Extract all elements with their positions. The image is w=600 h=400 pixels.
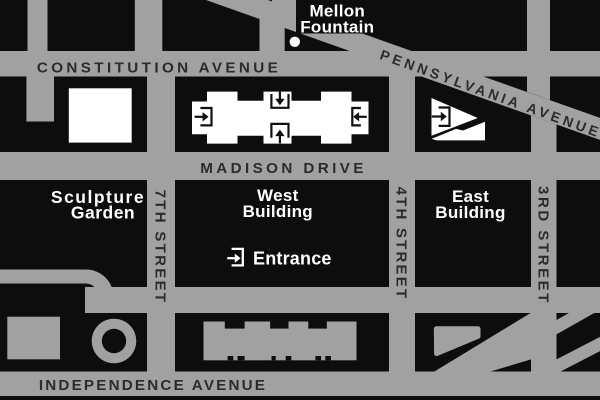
svg-text:7TH STREET: 7TH STREET (152, 190, 169, 305)
svg-text:3RD STREET: 3RD STREET (534, 186, 551, 305)
svg-text:INDEPENDENCE AVENUE: INDEPENDENCE AVENUE (39, 377, 267, 394)
svg-text:Entrance: Entrance (253, 248, 332, 268)
svg-text:Building: Building (243, 202, 313, 221)
svg-text:Fountain: Fountain (300, 18, 374, 37)
svg-text:4TH STREET: 4TH STREET (393, 187, 410, 301)
svg-text:Garden: Garden (71, 202, 135, 222)
svg-text:Building: Building (435, 203, 505, 222)
svg-text:CONSTITUTION AVENUE: CONSTITUTION AVENUE (37, 60, 281, 77)
svg-text:MADISON DRIVE: MADISON DRIVE (200, 160, 367, 177)
